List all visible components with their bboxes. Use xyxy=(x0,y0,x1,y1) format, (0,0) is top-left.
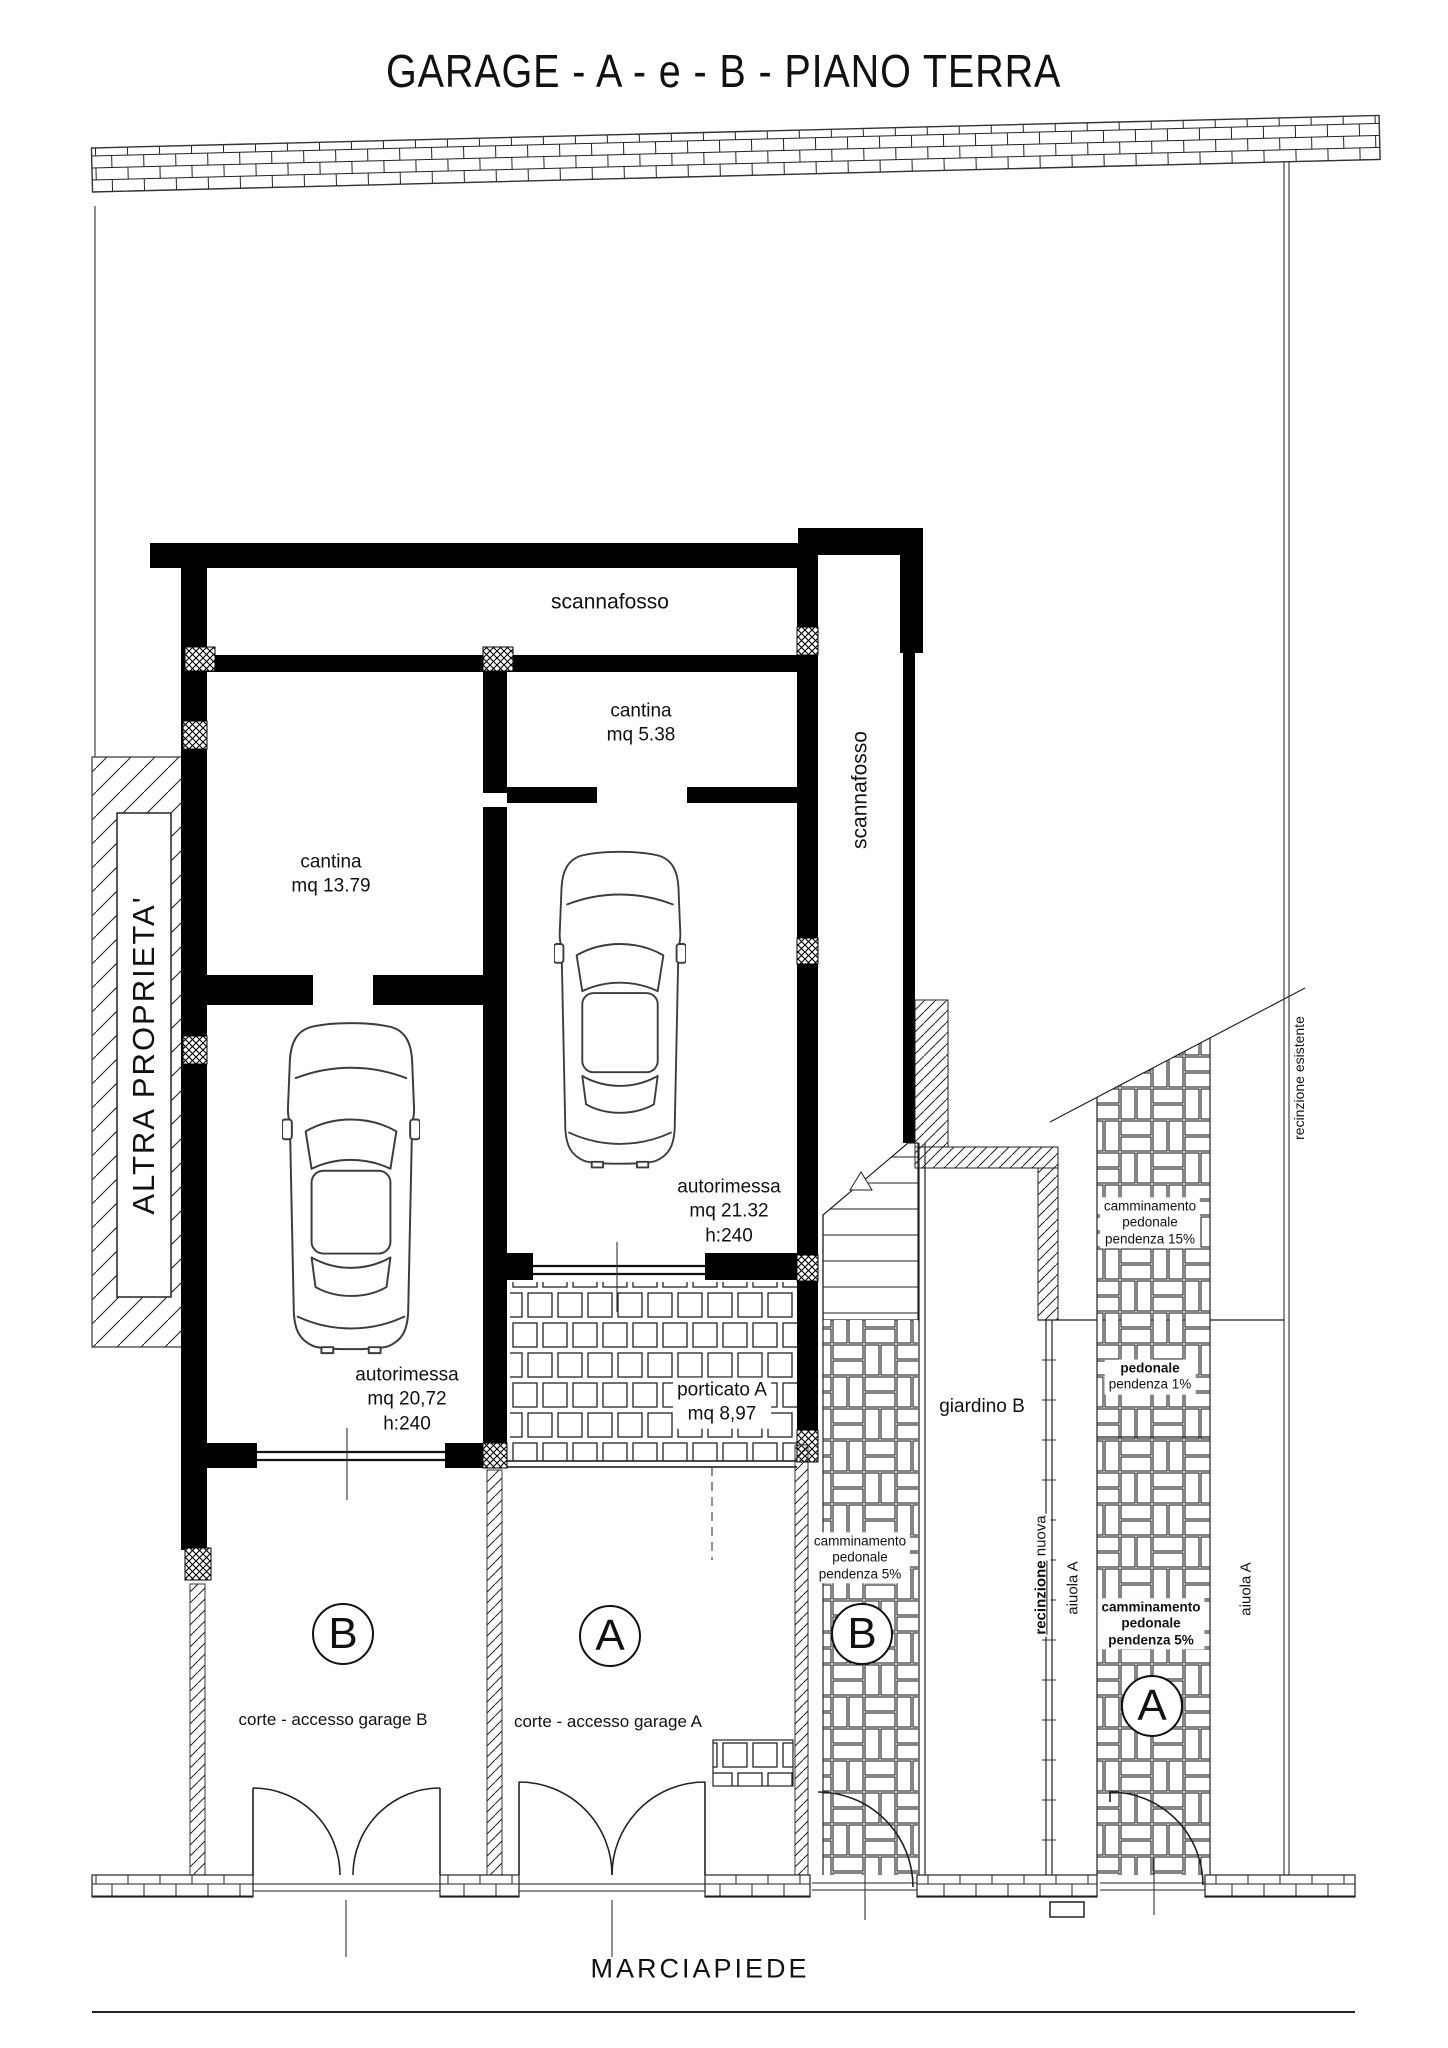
gate-corte-a xyxy=(519,1782,705,1891)
label-autorimessa-b: autorimessa mq 20,72 h:240 xyxy=(355,1364,459,1437)
walkway-a-paving xyxy=(1097,1038,1210,1875)
porticato-edge xyxy=(507,1461,797,1467)
garage-door-b xyxy=(257,1452,445,1460)
street-wall xyxy=(92,1875,1355,1897)
floorplan-sheet: GARAGE - A - e - B - PIANO TERRA scannaf… xyxy=(0,0,1448,2048)
label-aiuola-left: aiuola A xyxy=(1063,1561,1082,1614)
gate-corte-b xyxy=(253,1788,440,1891)
label-marciapiede: MARCIAPIEDE xyxy=(590,1952,809,1987)
corte-b-left-fence xyxy=(190,1584,205,1875)
label-scannafosso-top: scannafosso xyxy=(551,590,669,617)
marker-corte-b: B xyxy=(312,1603,374,1665)
car-b xyxy=(282,1023,420,1353)
label-corte-a: corte - accesso garage A xyxy=(514,1711,702,1733)
walkway-b-paving xyxy=(823,1320,918,1875)
label-cantina-b: cantina mq 13.79 xyxy=(291,851,370,900)
marker-walkway-b: B xyxy=(831,1603,893,1665)
label-giardino-b: giardino B xyxy=(939,1395,1025,1419)
landing-tiles xyxy=(713,1740,793,1786)
label-recinzione-nuova: recinzione nuova xyxy=(1031,1513,1050,1636)
utility-box xyxy=(1050,1902,1084,1917)
marker-corte-a: A xyxy=(579,1605,641,1667)
page-title: GARAGE - A - e - B - PIANO TERRA xyxy=(0,44,1448,98)
car-a xyxy=(554,852,686,1168)
label-corte-b: corte - accesso garage B xyxy=(239,1709,428,1731)
recinzione-esistente-fence xyxy=(1284,162,1289,1875)
label-camminamento-5-b: camminamento pedonale pendenza 5% xyxy=(810,1532,910,1583)
label-cantina-a: cantina mq 5.38 xyxy=(607,700,676,749)
corte-a-right-fence xyxy=(795,1445,808,1875)
label-camminamento-5-a: camminamento pedonale pendenza 5% xyxy=(1097,1598,1204,1649)
label-scannafosso-side: scannafosso xyxy=(848,731,875,849)
floor-plan-drawing xyxy=(0,0,1448,2048)
label-autorimessa-a: autorimessa mq 21.32 h:240 xyxy=(677,1176,781,1249)
label-pedonale-1: pedonale pendenza 1% xyxy=(1105,1360,1196,1395)
garage-door-a xyxy=(533,1266,705,1274)
corte-divider-fence xyxy=(487,1470,502,1875)
wall-opening xyxy=(483,793,507,807)
porticato-tiles xyxy=(510,1282,797,1461)
label-altra-proprieta: ALTRA PROPRIETA' xyxy=(124,895,164,1214)
label-aiuola-right: aiuola A xyxy=(1236,1562,1255,1615)
giardino-border xyxy=(915,1000,1058,1320)
label-camminamento-15: camminamento pedonale pendenza 15% xyxy=(1100,1197,1200,1248)
label-porticato-a: porticato A mq 8,97 xyxy=(673,1378,771,1429)
ramp-b xyxy=(823,1143,918,1320)
marker-walkway-a: A xyxy=(1121,1675,1183,1737)
top-boundary-wall xyxy=(91,115,1380,192)
label-recinzione-esistente: recinzione esistente xyxy=(1291,1016,1309,1140)
